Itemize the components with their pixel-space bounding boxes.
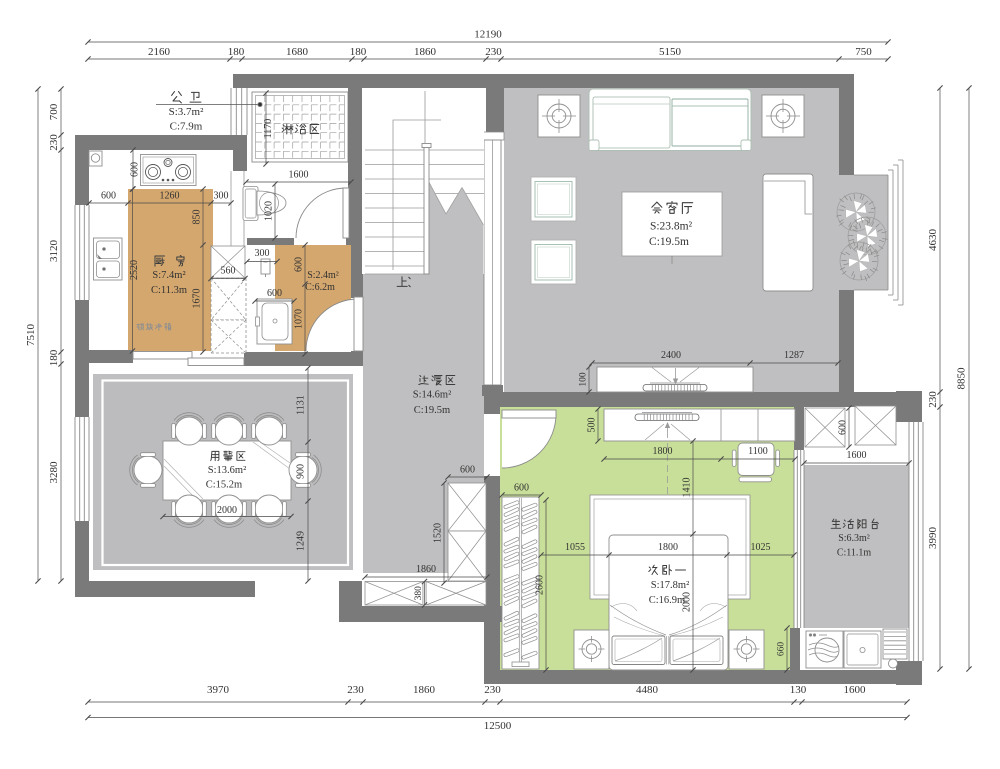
- svg-text:1600: 1600: [289, 170, 309, 181]
- svg-text:700: 700: [48, 103, 60, 120]
- svg-text:1100: 1100: [748, 446, 768, 457]
- svg-text:5150: 5150: [659, 46, 682, 58]
- svg-text:380: 380: [414, 586, 424, 601]
- svg-text:3990: 3990: [927, 527, 939, 550]
- svg-text:180: 180: [48, 349, 60, 366]
- svg-text:1055: 1055: [565, 542, 585, 553]
- svg-text:1025: 1025: [751, 542, 771, 553]
- svg-text:S:2.4m²: S:2.4m²: [307, 270, 339, 281]
- svg-text:600: 600: [838, 420, 849, 435]
- svg-text:3280: 3280: [48, 461, 60, 484]
- svg-text:1070: 1070: [294, 309, 305, 329]
- svg-text:180: 180: [228, 46, 245, 58]
- svg-text:1260: 1260: [160, 191, 180, 202]
- svg-text:180: 180: [350, 46, 367, 58]
- svg-text:S:14.6m²: S:14.6m²: [413, 390, 451, 401]
- svg-text:1131: 1131: [296, 395, 307, 415]
- svg-text:750: 750: [855, 46, 872, 58]
- svg-text:C:19.5m: C:19.5m: [414, 405, 450, 416]
- svg-text:300: 300: [214, 191, 229, 202]
- svg-text:600: 600: [101, 191, 116, 202]
- svg-text:C:7.9m: C:7.9m: [170, 121, 203, 133]
- svg-text:1800: 1800: [653, 446, 673, 457]
- svg-text:12500: 12500: [484, 720, 512, 732]
- svg-text:1860: 1860: [416, 564, 436, 575]
- svg-text:230: 230: [347, 684, 364, 696]
- svg-text:1670: 1670: [192, 289, 203, 309]
- svg-text:S:13.6m²: S:13.6m²: [208, 465, 246, 476]
- svg-text:130: 130: [790, 684, 807, 696]
- svg-text:1287: 1287: [784, 350, 804, 361]
- svg-text:S:6.3m²: S:6.3m²: [838, 533, 870, 544]
- svg-text:600: 600: [294, 257, 305, 272]
- svg-text:1680: 1680: [286, 46, 309, 58]
- svg-text:2000: 2000: [682, 592, 693, 612]
- svg-text:C:15.2m: C:15.2m: [206, 480, 242, 491]
- svg-text:C:11.1m: C:11.1m: [837, 548, 872, 559]
- svg-text:C:11.3m: C:11.3m: [151, 285, 187, 296]
- svg-text:4480: 4480: [636, 684, 659, 696]
- svg-text:2400: 2400: [661, 350, 681, 361]
- svg-text:230: 230: [485, 46, 502, 58]
- svg-text:7510: 7510: [25, 324, 37, 347]
- svg-text:600: 600: [460, 465, 475, 476]
- svg-text:600: 600: [514, 483, 529, 494]
- svg-text:2160: 2160: [148, 46, 171, 58]
- svg-text:600: 600: [130, 162, 141, 177]
- svg-text:1410: 1410: [682, 478, 693, 498]
- svg-text:230: 230: [48, 134, 60, 151]
- svg-text:S:17.8m²: S:17.8m²: [651, 580, 689, 591]
- svg-text:2600: 2600: [535, 575, 546, 595]
- svg-text:1600: 1600: [847, 450, 867, 461]
- svg-text:C:16.9m: C:16.9m: [649, 595, 685, 606]
- svg-text:300: 300: [255, 248, 270, 259]
- svg-text:1860: 1860: [414, 46, 437, 58]
- svg-text:3970: 3970: [207, 684, 230, 696]
- svg-text:S:3.7m²: S:3.7m²: [169, 106, 204, 118]
- svg-text:230: 230: [927, 391, 939, 408]
- svg-text:S:23.8m²: S:23.8m²: [650, 221, 693, 233]
- svg-text:C:6.2m: C:6.2m: [305, 282, 335, 293]
- svg-text:1860: 1860: [413, 684, 436, 696]
- svg-text:1020: 1020: [264, 201, 275, 221]
- svg-text:2000: 2000: [217, 505, 237, 516]
- svg-text:850: 850: [192, 210, 203, 225]
- svg-text:1800: 1800: [658, 542, 678, 553]
- svg-text:660: 660: [777, 642, 787, 657]
- svg-text:C:19.5m: C:19.5m: [649, 236, 689, 248]
- svg-text:600: 600: [267, 288, 282, 299]
- svg-text:1520: 1520: [433, 523, 444, 543]
- svg-text:900: 900: [296, 464, 307, 479]
- svg-text:12190: 12190: [474, 29, 502, 41]
- svg-text:1170: 1170: [263, 119, 274, 139]
- svg-text:1249: 1249: [296, 531, 307, 551]
- svg-text:1600: 1600: [844, 684, 867, 696]
- svg-text:230: 230: [484, 684, 501, 696]
- svg-text:3120: 3120: [48, 240, 60, 263]
- svg-text:S:7.4m²: S:7.4m²: [152, 270, 185, 281]
- svg-text:4630: 4630: [927, 229, 939, 252]
- svg-text:8850: 8850: [956, 367, 968, 390]
- svg-text:500: 500: [587, 418, 598, 433]
- svg-text:2520: 2520: [129, 260, 140, 280]
- svg-text:100: 100: [579, 372, 589, 387]
- svg-text:560: 560: [221, 266, 236, 277]
